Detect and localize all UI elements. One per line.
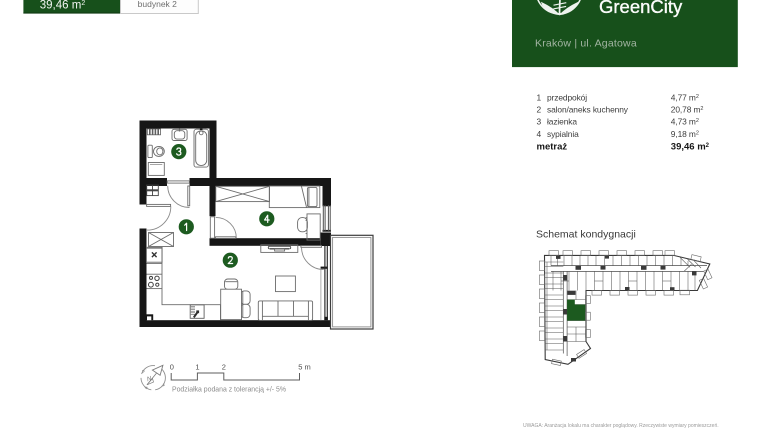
svg-text:4,77 m2: 4,77 m2 (671, 92, 699, 102)
svg-text:przedpokój: przedpokój (547, 92, 587, 102)
svg-text:budynek 2: budynek 2 (138, 0, 177, 9)
svg-text:GreenCity: GreenCity (599, 0, 683, 17)
svg-text:1: 1 (195, 363, 199, 372)
svg-text:salon/aneks kuchenny: salon/aneks kuchenny (547, 105, 629, 115)
svg-text:Podziałka podana z tolerancją: Podziałka podana z tolerancją +/- 5% (172, 386, 286, 393)
svg-text:Schemat kondygnacji: Schemat kondygnacji (536, 228, 636, 240)
svg-text:metraż: metraż (537, 142, 568, 153)
svg-text:sypialnia: sypialnia (547, 129, 579, 139)
svg-text:2: 2 (222, 363, 226, 372)
svg-text:39,46 m2: 39,46 m2 (671, 142, 710, 153)
svg-text:9,18 m2: 9,18 m2 (671, 129, 699, 139)
svg-text:UWAGA: Aranżacja lokalu ma cha: UWAGA: Aranżacja lokalu ma charakter pog… (523, 423, 719, 428)
svg-text:20,78 m2: 20,78 m2 (671, 105, 704, 115)
svg-text:5 m: 5 m (298, 363, 311, 372)
svg-text:Kraków | ul. Agatowa: Kraków | ul. Agatowa (535, 37, 637, 49)
svg-text:0: 0 (170, 363, 174, 372)
svg-text:39,46 m2: 39,46 m2 (40, 0, 86, 12)
svg-text:4,73 m2: 4,73 m2 (671, 117, 699, 127)
svg-text:łazienka: łazienka (547, 117, 577, 127)
svg-text:1: 1 (537, 92, 542, 102)
svg-text:3: 3 (537, 117, 542, 127)
svg-text:2: 2 (537, 105, 542, 115)
svg-text:4: 4 (537, 129, 542, 139)
